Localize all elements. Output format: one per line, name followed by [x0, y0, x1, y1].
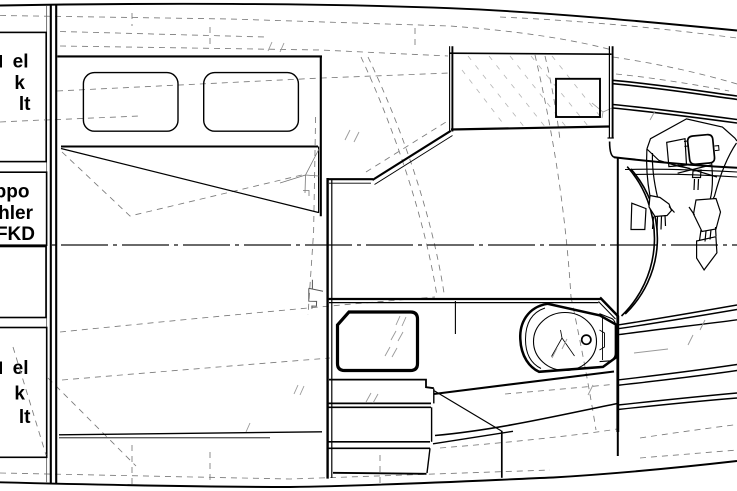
svg-text:lt: lt: [19, 407, 31, 428]
svg-text:k: k: [14, 384, 25, 405]
svg-text:FKD: FKD: [0, 224, 35, 245]
svg-text:el: el: [13, 358, 29, 379]
svg-text:lt: lt: [19, 94, 31, 115]
svg-text:ppo: ppo: [0, 182, 30, 203]
svg-text:k: k: [14, 73, 25, 94]
svg-text:el: el: [13, 52, 29, 73]
svg-text:hler: hler: [0, 203, 34, 224]
